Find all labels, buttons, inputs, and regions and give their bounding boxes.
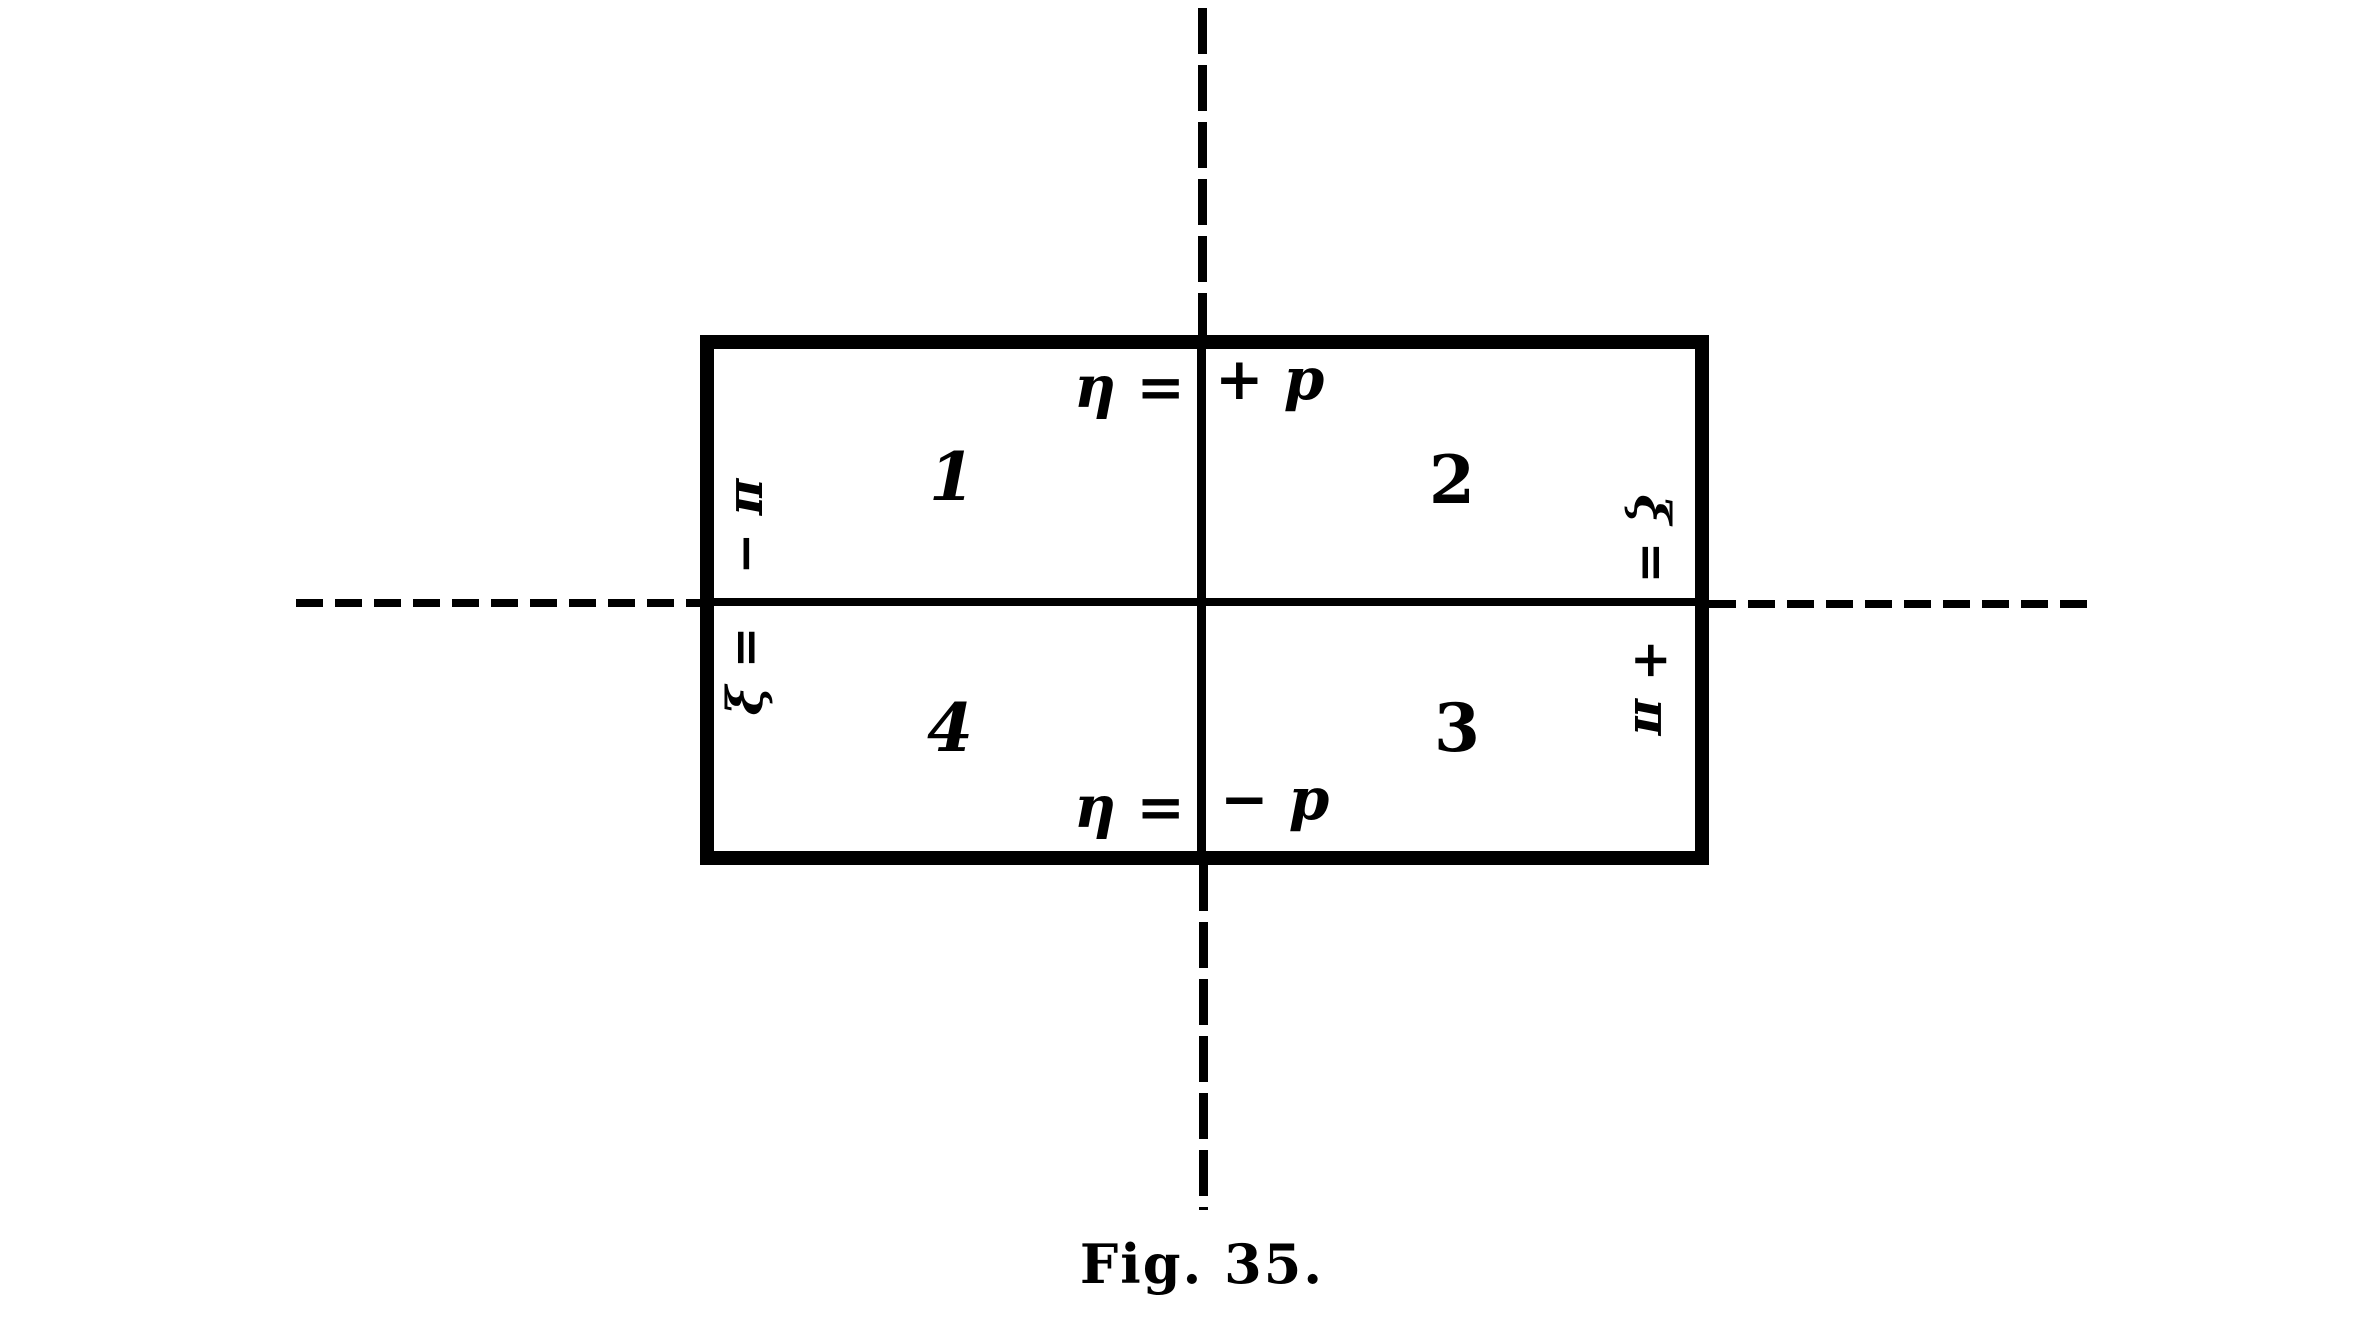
x-axis-solid: [714, 598, 1695, 606]
figure-caption: Fig. 35.: [1002, 1232, 1402, 1296]
y-axis-dashed-bottom: [1199, 865, 1208, 1210]
quadrant-1-label: 1: [892, 437, 1012, 517]
right-edge-label-lhs: ξ =: [1627, 495, 1677, 584]
left-edge-label-rhs: − π: [720, 479, 770, 575]
quadrant-2-label: 2: [1392, 440, 1512, 520]
x-axis-dashed-left: [296, 599, 700, 607]
bottom-edge-label-lhs: η =: [1005, 778, 1185, 836]
figure-canvas: η = + p η = − p ξ = − π ξ = + π 1 2 3 4 …: [0, 0, 2376, 1328]
left-edge-label: ξ = − π: [720, 479, 770, 716]
top-edge-label-lhs: η =: [1005, 358, 1185, 416]
x-axis-dashed-right: [1709, 600, 2090, 608]
top-edge-label-rhs: + p: [1215, 350, 1324, 408]
quadrant-3-label: 3: [1397, 688, 1517, 768]
right-edge-label: ξ = + π: [1627, 495, 1677, 736]
bottom-edge-label-rhs: − p: [1220, 770, 1329, 828]
y-axis-dashed-top: [1198, 8, 1207, 335]
right-edge-label-rhs: + π: [1627, 640, 1677, 736]
quadrant-4-label: 4: [890, 688, 1010, 768]
left-edge-label-lhs: ξ =: [720, 626, 770, 715]
